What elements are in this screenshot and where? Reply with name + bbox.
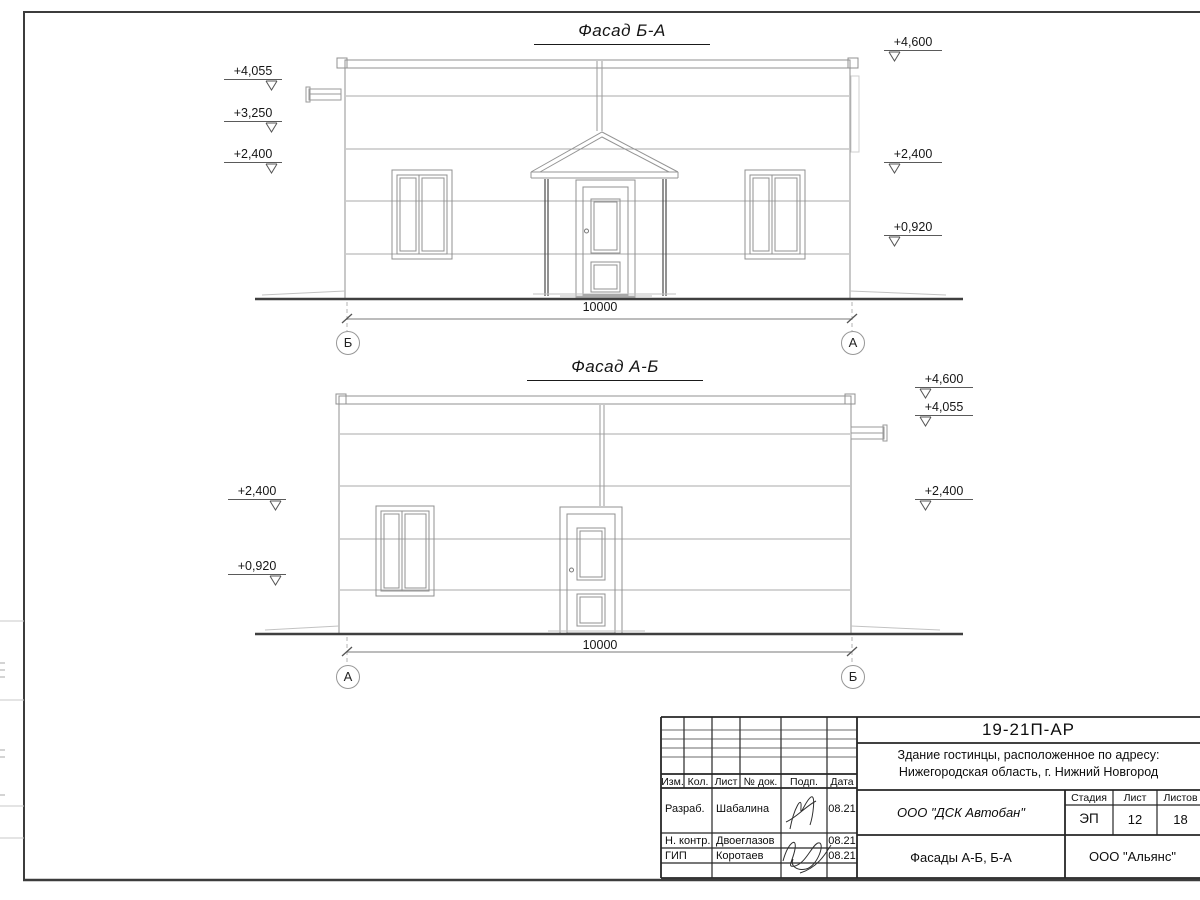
elevation-value: +4,600 xyxy=(915,372,973,388)
drawing-sheet: Фасад Б-А +4,055 +3,250 +2,400 +4,600 +2… xyxy=(0,0,1200,900)
elevation-mark: +0,920 xyxy=(884,220,942,236)
elevation-arrow-icon xyxy=(888,51,901,63)
row-role: ГИП xyxy=(665,850,687,862)
elevation-value: +4,055 xyxy=(224,64,282,80)
contractor: ООО "Альянс" xyxy=(1065,849,1200,864)
elevation-value: +0,920 xyxy=(228,559,286,575)
door-2 xyxy=(560,507,622,634)
axis-letter: Б xyxy=(344,335,353,350)
axis-bubble-a2: А xyxy=(336,665,360,689)
dimension-text-2: 10000 xyxy=(540,638,660,652)
elevation-mark: +4,055 xyxy=(224,64,282,80)
row-date: 08.21 xyxy=(827,835,857,847)
elevation-arrow-icon xyxy=(265,122,278,134)
design-company: ООО "ДСК Автобан" xyxy=(859,805,1063,820)
dimension-text-1: 10000 xyxy=(540,300,660,314)
sheet-label: Лист xyxy=(1113,792,1157,804)
elevation-arrow-icon xyxy=(265,163,278,175)
ground-line-2 xyxy=(255,626,963,634)
axis-letter: А xyxy=(849,335,858,350)
downspout-2 xyxy=(600,405,604,506)
col-izm: Изм. xyxy=(661,776,684,788)
elevation-value: +4,055 xyxy=(915,400,973,416)
project-name-line2: Нижегородская область, г. Нижний Новгоро… xyxy=(860,765,1197,779)
window-right xyxy=(745,170,805,259)
window-left xyxy=(392,170,452,259)
facade-2-title: Фасад А-Б xyxy=(527,357,703,381)
sheet-number: 12 xyxy=(1113,812,1157,827)
project-name-line1: Здание гостинцы, расположенное по адресу… xyxy=(860,748,1197,762)
wall-pipe-left xyxy=(306,87,341,102)
drawing-title: Фасады А-Б, Б-А xyxy=(859,850,1063,865)
elevation-mark: +2,400 xyxy=(228,484,286,500)
row-name: Двоеглазов xyxy=(716,835,774,847)
elevation-arrow-icon xyxy=(265,80,278,92)
left-edge-stamp xyxy=(0,621,24,838)
doc-number: 19-21П-АР xyxy=(857,720,1200,740)
facade-2-drawing xyxy=(255,394,963,665)
elevation-arrow-icon xyxy=(888,236,901,248)
window-2 xyxy=(376,506,434,596)
elevation-arrow-icon xyxy=(269,575,282,587)
elevation-value: +2,400 xyxy=(228,484,286,500)
wall-pipe-right xyxy=(851,425,887,441)
col-podp: Подп. xyxy=(781,776,827,788)
elevation-value: +2,400 xyxy=(915,484,973,500)
elevation-mark: +4,055 xyxy=(915,400,973,416)
stage-label: Стадия xyxy=(1065,792,1113,804)
elevation-value: +2,400 xyxy=(224,147,282,163)
elevation-arrow-icon xyxy=(919,500,932,512)
downpipe-right xyxy=(851,76,859,152)
axis-bubble-b2: Б xyxy=(841,665,865,689)
sheets-label: Листов xyxy=(1157,792,1200,804)
facade-1-drawing xyxy=(255,58,963,331)
col-doc: № док. xyxy=(740,776,781,788)
elevation-value: +0,920 xyxy=(884,220,942,236)
row-date: 08.21 xyxy=(827,803,857,815)
col-list: Лист xyxy=(712,776,740,788)
elevation-mark: +3,250 xyxy=(224,106,282,122)
sheets-total: 18 xyxy=(1157,812,1200,827)
elevation-mark: +2,400 xyxy=(884,147,942,163)
signature-shabalina xyxy=(786,797,816,829)
axis-bubble-b: Б xyxy=(336,331,360,355)
row-role: Разраб. xyxy=(665,803,705,815)
elevation-arrow-icon xyxy=(919,388,932,400)
elevation-arrow-icon xyxy=(919,416,932,428)
row-name: Шабалина xyxy=(716,803,769,815)
col-kol: Кол. xyxy=(684,776,712,788)
elevation-mark: +4,600 xyxy=(915,372,973,388)
row-role: Н. контр. xyxy=(665,835,710,847)
stage-value: ЭП xyxy=(1065,811,1113,826)
col-data: Дата xyxy=(827,776,857,788)
siding-lines-2 xyxy=(340,434,850,590)
facade-1-title: Фасад Б-А xyxy=(534,21,710,45)
signatures xyxy=(783,797,831,873)
elevation-mark: +2,400 xyxy=(915,484,973,500)
elevation-value: +4,600 xyxy=(884,35,942,51)
entrance-door xyxy=(576,180,635,297)
row-name: Коротаев xyxy=(716,850,764,862)
axis-letter: Б xyxy=(849,669,858,684)
elevation-arrow-icon xyxy=(269,500,282,512)
axis-bubble-a: А xyxy=(841,331,865,355)
elevation-value: +3,250 xyxy=(224,106,282,122)
elevation-arrow-icon xyxy=(888,163,901,175)
elevation-mark: +0,920 xyxy=(228,559,286,575)
elevation-mark: +4,600 xyxy=(884,35,942,51)
porch-posts xyxy=(545,179,666,296)
axis-letter: А xyxy=(344,669,353,684)
porch-canopy xyxy=(531,132,678,178)
signature-korotaev xyxy=(783,842,831,873)
row-date: 08.21 xyxy=(827,850,857,862)
elevation-value: +2,400 xyxy=(884,147,942,163)
elevation-mark: +2,400 xyxy=(224,147,282,163)
